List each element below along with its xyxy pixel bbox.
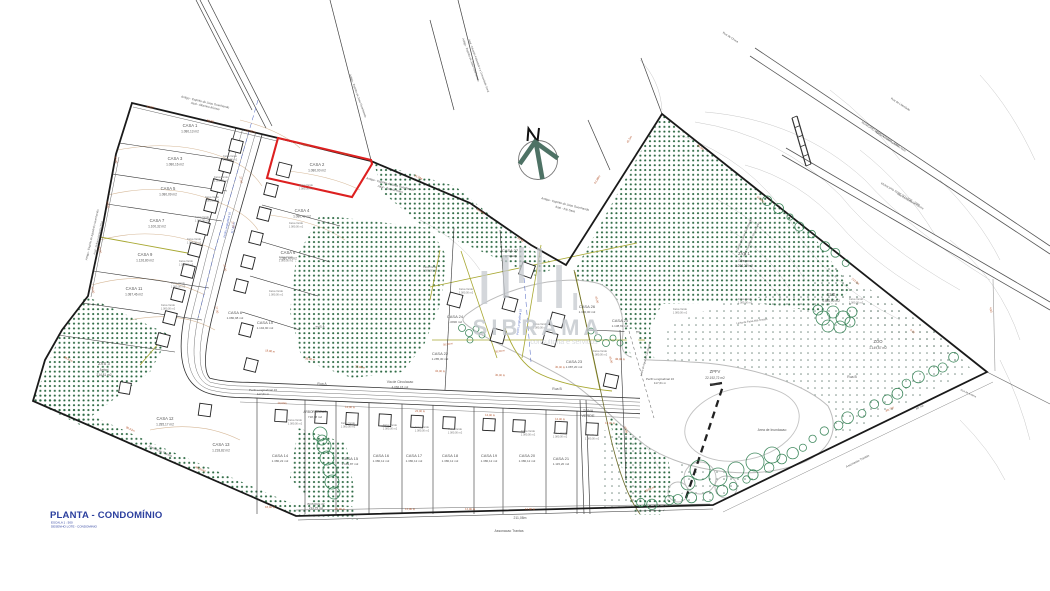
svg-text:CASA 12: CASA 12: [157, 416, 175, 421]
svg-text:30,00 m: 30,00 m: [495, 373, 506, 378]
svg-text:Faixa Verde: Faixa Verde: [448, 427, 462, 431]
svg-text:1.080,00 m2: 1.080,00 m2: [171, 284, 186, 288]
svg-text:1.080,00 m2: 1.080,00 m2: [288, 421, 303, 425]
svg-text:1.080,00 m2: 1.080,00 m2: [593, 352, 608, 356]
svg-text:Faixa Verde: Faixa Verde: [673, 307, 687, 311]
svg-text:CASA 15: CASA 15: [342, 456, 359, 461]
svg-text:Faixa Verde: Faixa Verde: [459, 287, 473, 291]
svg-text:CASA 26: CASA 26: [579, 304, 596, 309]
svg-text:1.138,69 m2: 1.138,69 m2: [612, 324, 629, 328]
svg-text:1.080,98 m2: 1.080,98 m2: [227, 316, 244, 320]
svg-text:1.126,80 m2: 1.126,80 m2: [136, 259, 154, 263]
svg-text:1.080,00 m2: 1.080,00 m2: [553, 434, 568, 438]
svg-text:CASA 11: CASA 11: [126, 286, 143, 291]
svg-text:CASA 18: CASA 18: [442, 453, 459, 458]
svg-text:Faixa Verde: Faixa Verde: [341, 421, 355, 425]
svg-text:117,61 m: 117,61 m: [257, 392, 270, 396]
svg-text:1.080,00 m2: 1.080,00 m2: [521, 432, 536, 436]
svg-text:18,00 m: 18,00 m: [265, 505, 276, 509]
svg-text:13,00 m: 13,00 m: [345, 405, 356, 410]
svg-text:CUE: CUE: [827, 292, 836, 297]
svg-text:CASA 7: CASA 7: [150, 218, 165, 223]
svg-text:1.194,90 m2: 1.194,90 m2: [257, 326, 274, 330]
svg-text:Faixa Verde: Faixa Verde: [187, 237, 201, 241]
svg-text:43,00 m: 43,00 m: [435, 369, 446, 374]
svg-text:CASA 21: CASA 21: [553, 456, 570, 461]
svg-text:Faixa Verde: Faixa Verde: [521, 429, 535, 433]
svg-text:CASA 22: CASA 22: [432, 351, 449, 356]
svg-text:1.380,12 m2: 1.380,12 m2: [481, 459, 498, 463]
svg-text:1.380,00 m2: 1.380,00 m2: [579, 310, 596, 314]
svg-text:1.080,00 m2: 1.080,00 m2: [383, 426, 398, 430]
svg-text:Rua B: Rua B: [847, 375, 857, 379]
svg-text:CASA 8: CASA 8: [228, 310, 243, 315]
svg-text:CASA 1: CASA 1: [183, 123, 198, 128]
svg-text:Aefwd: Aefwd: [100, 368, 109, 372]
svg-text:CASA 2: CASA 2: [310, 162, 325, 167]
svg-text:CASA 4: CASA 4: [295, 208, 310, 213]
svg-text:Faixa Verde: Faixa Verde: [288, 418, 302, 422]
svg-text:CASA 14: CASA 14: [272, 453, 289, 458]
svg-text:48,00 m: 48,00 m: [615, 357, 626, 362]
svg-text:CASA 25: CASA 25: [612, 318, 629, 323]
svg-text:Via de Circulacao: Via de Circulacao: [387, 380, 414, 384]
svg-text:1.080,00 m2: 1.080,00 m2: [179, 262, 194, 266]
svg-text:1.149,67 m2: 1.149,67 m2: [869, 346, 887, 350]
svg-text:8.203,29 m2: 8.203,29 m2: [735, 264, 753, 268]
svg-text:1.980,00 m2: 1.980,00 m2: [822, 299, 840, 303]
svg-text:1.080,00 m2: 1.080,00 m2: [289, 224, 304, 228]
svg-text:1.285,17 m2: 1.285,17 m2: [156, 423, 174, 427]
svg-text:Area de Inundacao: Area de Inundacao: [758, 428, 787, 432]
svg-text:1.080,00 m2: 1.080,00 m2: [299, 186, 314, 190]
svg-text:1.080,00 m2: 1.080,00 m2: [459, 290, 474, 294]
svg-text:1.0830 m2: 1.0830 m2: [448, 320, 463, 324]
svg-text:1.380,12 m2: 1.380,12 m2: [442, 459, 459, 463]
svg-text:CASA 17: CASA 17: [406, 453, 423, 458]
svg-text:1.080,00 m2: 1.080,00 m2: [205, 198, 220, 202]
svg-text:1.380,22 m2: 1.380,22 m2: [272, 459, 289, 463]
svg-text:ZVS 3: ZVS 3: [98, 361, 110, 366]
svg-text:ZPFV: ZPFV: [710, 369, 721, 374]
svg-text:13,00 m: 13,00 m: [465, 507, 476, 511]
svg-text:214,75 m2: 214,75 m2: [309, 506, 324, 510]
svg-text:1.080,00 m2: 1.080,00 m2: [415, 428, 430, 432]
svg-text:13,00 m: 13,00 m: [485, 413, 496, 418]
svg-text:Faixa Verde: Faixa Verde: [269, 289, 283, 293]
svg-text:1.080,16 m2: 1.080,16 m2: [166, 163, 184, 167]
svg-text:Faixa Verde: Faixa Verde: [179, 259, 193, 263]
svg-text:Faixa Verde: Faixa Verde: [289, 221, 303, 225]
svg-text:1.080,00 m2: 1.080,00 m2: [673, 310, 688, 314]
svg-text:CASA 27: CASA 27: [502, 248, 519, 253]
svg-text:214,81 m2: 214,81 m2: [96, 373, 111, 377]
svg-text:CASA 23: CASA 23: [566, 359, 583, 364]
svg-text:1.080,00 m2: 1.080,00 m2: [423, 268, 438, 272]
svg-text:1.080,00 m2: 1.080,00 m2: [308, 169, 326, 173]
svg-text:Direcao: Direcao: [739, 259, 750, 263]
svg-text:1.080,00 m2: 1.080,00 m2: [161, 306, 176, 310]
svg-text:23,00 m: 23,00 m: [415, 409, 426, 414]
svg-text:1.080,00 m2: 1.080,00 m2: [223, 157, 238, 161]
svg-text:13,00 m: 13,00 m: [555, 417, 566, 422]
svg-text:DESENHO LOTE - CONDOMINIO: DESENHO LOTE - CONDOMINIO: [51, 525, 98, 529]
svg-text:13,00 m: 13,00 m: [405, 507, 416, 511]
svg-text:Rua A: Rua A: [317, 382, 327, 386]
svg-text:Assonacao Trantas: Assonacao Trantas: [494, 529, 523, 533]
svg-text:22.192,72 m2: 22.192,72 m2: [705, 376, 725, 380]
svg-text:1.218,82 m2: 1.218,82 m2: [212, 449, 230, 453]
svg-text:1.080,00 m2: 1.080,00 m2: [187, 240, 202, 244]
svg-text:Faixa Verde: Faixa Verde: [849, 297, 863, 301]
svg-text:Faixa Verde: Faixa Verde: [415, 425, 429, 429]
svg-text:Faixa Verde: Faixa Verde: [195, 215, 209, 219]
svg-text:1.080,00 m2: 1.080,00 m2: [585, 436, 600, 440]
svg-text:consultoria e servicos: consultoria e servicos: [530, 339, 598, 346]
svg-text:Faixa Verde: Faixa Verde: [423, 265, 437, 269]
svg-text:Faixa Verde: Faixa Verde: [161, 303, 175, 307]
svg-text:1.080,00 m2: 1.080,00 m2: [849, 300, 864, 304]
svg-text:10,00m: 10,00m: [277, 401, 287, 406]
svg-text:Faixa Verde: Faixa Verde: [299, 183, 313, 187]
svg-text:CASA 13: CASA 13: [213, 442, 231, 447]
svg-text:12,00 m: 12,00 m: [605, 421, 616, 426]
svg-text:Faixa Verde: Faixa Verde: [738, 297, 752, 301]
svg-text:1.087,46 m2: 1.087,46 m2: [125, 293, 143, 297]
svg-text:1.380,12 m2: 1.380,12 m2: [519, 459, 536, 463]
svg-text:30,00 m: 30,00 m: [555, 365, 566, 370]
svg-text:1.380,12 m2: 1.380,12 m2: [406, 459, 423, 463]
svg-text:CASA 9: CASA 9: [138, 252, 153, 257]
svg-text:ZOO: ZOO: [873, 339, 883, 344]
svg-text:718,38 m2: 718,38 m2: [308, 415, 323, 419]
svg-text:1.080,00 m2: 1.080,00 m2: [269, 292, 284, 296]
svg-text:PLANTA - CONDOMÍNIO: PLANTA - CONDOMÍNIO: [50, 510, 163, 521]
svg-text:1.080,00 m2: 1.080,00 m2: [214, 178, 229, 182]
svg-text:211,08m: 211,08m: [514, 516, 527, 520]
svg-text:CASA 24: CASA 24: [447, 314, 464, 319]
svg-text:Rua B: Rua B: [552, 387, 562, 391]
svg-text:1.080,09 m2: 1.080,09 m2: [159, 193, 177, 197]
svg-text:1.087,20 m2: 1.087,20 m2: [566, 365, 583, 369]
svg-text:CASA 16: CASA 16: [373, 453, 390, 458]
svg-text:1.080,40 m2: 1.080,40 m2: [293, 215, 311, 219]
svg-text:ARBORIZACAO: ARBORIZACAO: [303, 410, 327, 414]
svg-text:1.080,00 m2: 1.080,00 m2: [448, 430, 463, 434]
svg-text:12,00 m: 12,00 m: [525, 507, 536, 511]
svg-text:1.080,00 m2: 1.080,00 m2: [738, 300, 753, 304]
svg-text:CASA 19: CASA 19: [481, 453, 498, 458]
svg-text:1.380,12 m2: 1.380,12 m2: [373, 459, 390, 463]
svg-text:1.080,00 m2: 1.080,00 m2: [341, 424, 356, 428]
svg-text:Faixa Verde: Faixa Verde: [223, 154, 237, 158]
svg-text:Faixa Verde: Faixa Verde: [214, 175, 228, 179]
svg-text:1.285,30 m2: 1.285,30 m2: [432, 357, 449, 361]
svg-text:1.115,20 m2: 1.115,20 m2: [553, 462, 570, 466]
svg-text:1.080,00 m2: 1.080,00 m2: [279, 258, 294, 262]
svg-text:CASA 5: CASA 5: [161, 186, 176, 191]
svg-text:117,61 m: 117,61 m: [654, 381, 667, 385]
svg-text:4.066,15 m2: 4.066,15 m2: [392, 385, 409, 389]
svg-text:CASA 6: CASA 6: [281, 250, 296, 255]
svg-text:Faixa Verde: Faixa Verde: [171, 281, 185, 285]
svg-text:1.080,13 m2: 1.080,13 m2: [181, 130, 199, 134]
svg-text:Faixa Verde: Faixa Verde: [383, 423, 397, 427]
svg-text:1.100,32 m2: 1.100,32 m2: [148, 225, 166, 229]
svg-text:1.181,87 m2: 1.181,87 m2: [342, 462, 359, 466]
svg-text:19,00 m: 19,00 m: [335, 507, 346, 511]
svg-text:CASA 10: CASA 10: [257, 320, 274, 325]
svg-text:ZONA: ZONA: [583, 409, 594, 413]
svg-text:Faixa Verde: Faixa Verde: [279, 255, 293, 259]
svg-text:CASA 20: CASA 20: [519, 453, 536, 458]
svg-text:1.080,00 m2: 1.080,00 m2: [195, 218, 210, 222]
svg-text:Faixa Verde: Faixa Verde: [205, 195, 219, 199]
svg-text:CASA 3: CASA 3: [168, 156, 183, 161]
svg-text:VERDE: VERDE: [581, 414, 595, 418]
svg-text:Faixa Verde: Faixa Verde: [553, 431, 567, 435]
svg-text:SIBRAMA: SIBRAMA: [473, 315, 604, 340]
svg-text:Faixa Verde: Faixa Verde: [585, 433, 599, 437]
svg-text:Mereda: Mereda: [710, 382, 721, 386]
svg-text:Faixa Verde: Faixa Verde: [593, 349, 607, 353]
